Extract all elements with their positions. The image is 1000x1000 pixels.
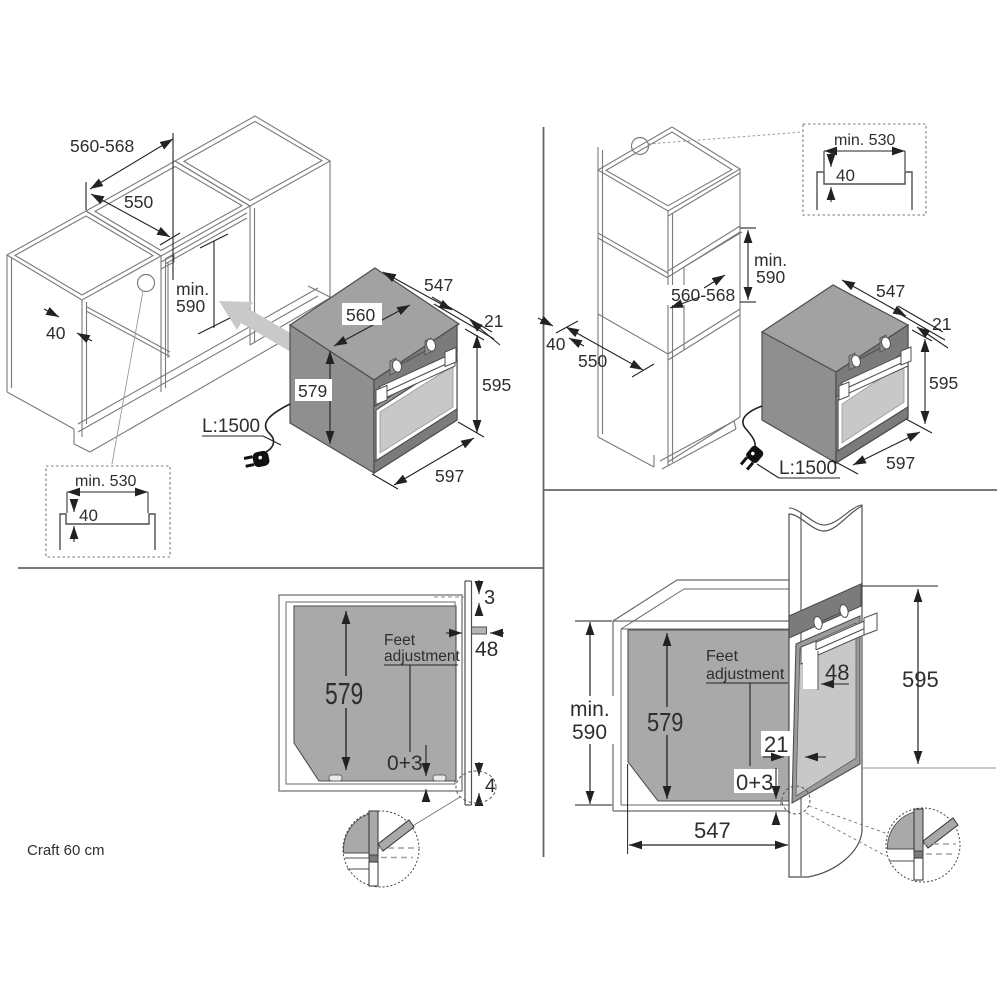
- svg-text:40: 40: [79, 506, 98, 525]
- svg-text:3: 3: [484, 587, 495, 609]
- svg-text:Craft 60 cm: Craft 60 cm: [27, 842, 105, 859]
- svg-text:547: 547: [424, 275, 453, 295]
- svg-text:550: 550: [578, 351, 607, 371]
- svg-text:590: 590: [572, 721, 607, 744]
- svg-text:560: 560: [346, 305, 375, 325]
- svg-text:Feet: Feet: [706, 648, 739, 665]
- svg-text:40: 40: [836, 166, 855, 185]
- svg-text:adjustment: adjustment: [706, 666, 785, 683]
- svg-text:21: 21: [764, 732, 788, 757]
- svg-text:560-568: 560-568: [70, 136, 134, 156]
- svg-text:595: 595: [929, 373, 958, 393]
- svg-text:40: 40: [546, 334, 566, 354]
- svg-text:min. 530: min. 530: [75, 473, 136, 490]
- svg-text:adjustment: adjustment: [384, 648, 461, 665]
- svg-text:48: 48: [825, 660, 849, 685]
- svg-text:597: 597: [435, 466, 464, 486]
- svg-text:547: 547: [694, 818, 731, 843]
- svg-text:min.: min.: [570, 698, 610, 721]
- svg-text:550: 550: [124, 192, 153, 212]
- svg-text:L:1500: L:1500: [202, 416, 260, 437]
- svg-text:597: 597: [886, 453, 915, 473]
- svg-text:min. 530: min. 530: [834, 132, 895, 149]
- svg-text:48: 48: [475, 638, 498, 661]
- svg-text:579: 579: [647, 708, 683, 737]
- svg-text:L:1500: L:1500: [779, 458, 837, 479]
- svg-text:595: 595: [902, 667, 939, 692]
- svg-text:21: 21: [484, 311, 503, 331]
- svg-text:590: 590: [756, 267, 785, 287]
- svg-text:40: 40: [46, 323, 66, 343]
- svg-text:0+3: 0+3: [736, 770, 773, 795]
- svg-text:579: 579: [298, 381, 327, 401]
- svg-text:579: 579: [325, 676, 363, 711]
- svg-text:560-568: 560-568: [671, 285, 735, 305]
- svg-text:595: 595: [482, 375, 511, 395]
- svg-text:590: 590: [176, 296, 205, 316]
- svg-text:547: 547: [876, 281, 905, 301]
- svg-text:0+3: 0+3: [387, 752, 423, 775]
- svg-text:Feet: Feet: [384, 632, 416, 649]
